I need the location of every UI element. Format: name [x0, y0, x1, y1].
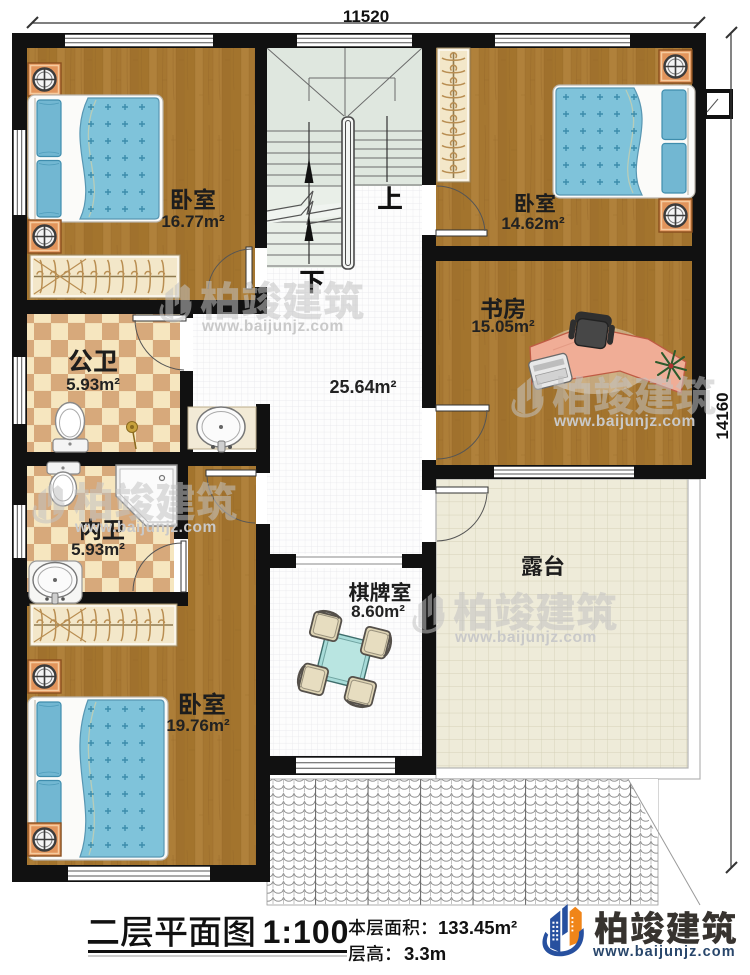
svg-text:14160: 14160 — [713, 392, 732, 439]
svg-text:www.baijunjz.com: www.baijunjz.com — [553, 413, 696, 430]
svg-text:www.baijunjz.com: www.baijunjz.com — [454, 629, 597, 646]
svg-text:8.60m²: 8.60m² — [351, 602, 405, 621]
svg-text:www.baijunjz.com: www.baijunjz.com — [592, 944, 736, 960]
svg-text:www.baijunjz.com: www.baijunjz.com — [74, 519, 217, 536]
svg-text:16.77m²: 16.77m² — [161, 212, 225, 231]
svg-text:19.76m²: 19.76m² — [166, 716, 230, 735]
svg-text:www.baijunjz.com: www.baijunjz.com — [201, 318, 344, 335]
svg-text:14.62m²: 14.62m² — [501, 214, 565, 233]
svg-text:15.05m²: 15.05m² — [471, 317, 535, 336]
svg-text:3.3m: 3.3m — [404, 943, 446, 964]
svg-text:5.93m²: 5.93m² — [66, 375, 120, 394]
svg-text:5.93m²: 5.93m² — [71, 540, 125, 559]
svg-text:133.45m²: 133.45m² — [438, 917, 517, 938]
svg-text:11520: 11520 — [343, 7, 389, 26]
svg-text:25.64m²: 25.64m² — [329, 377, 396, 397]
svg-text:1:100: 1:100 — [263, 914, 350, 950]
